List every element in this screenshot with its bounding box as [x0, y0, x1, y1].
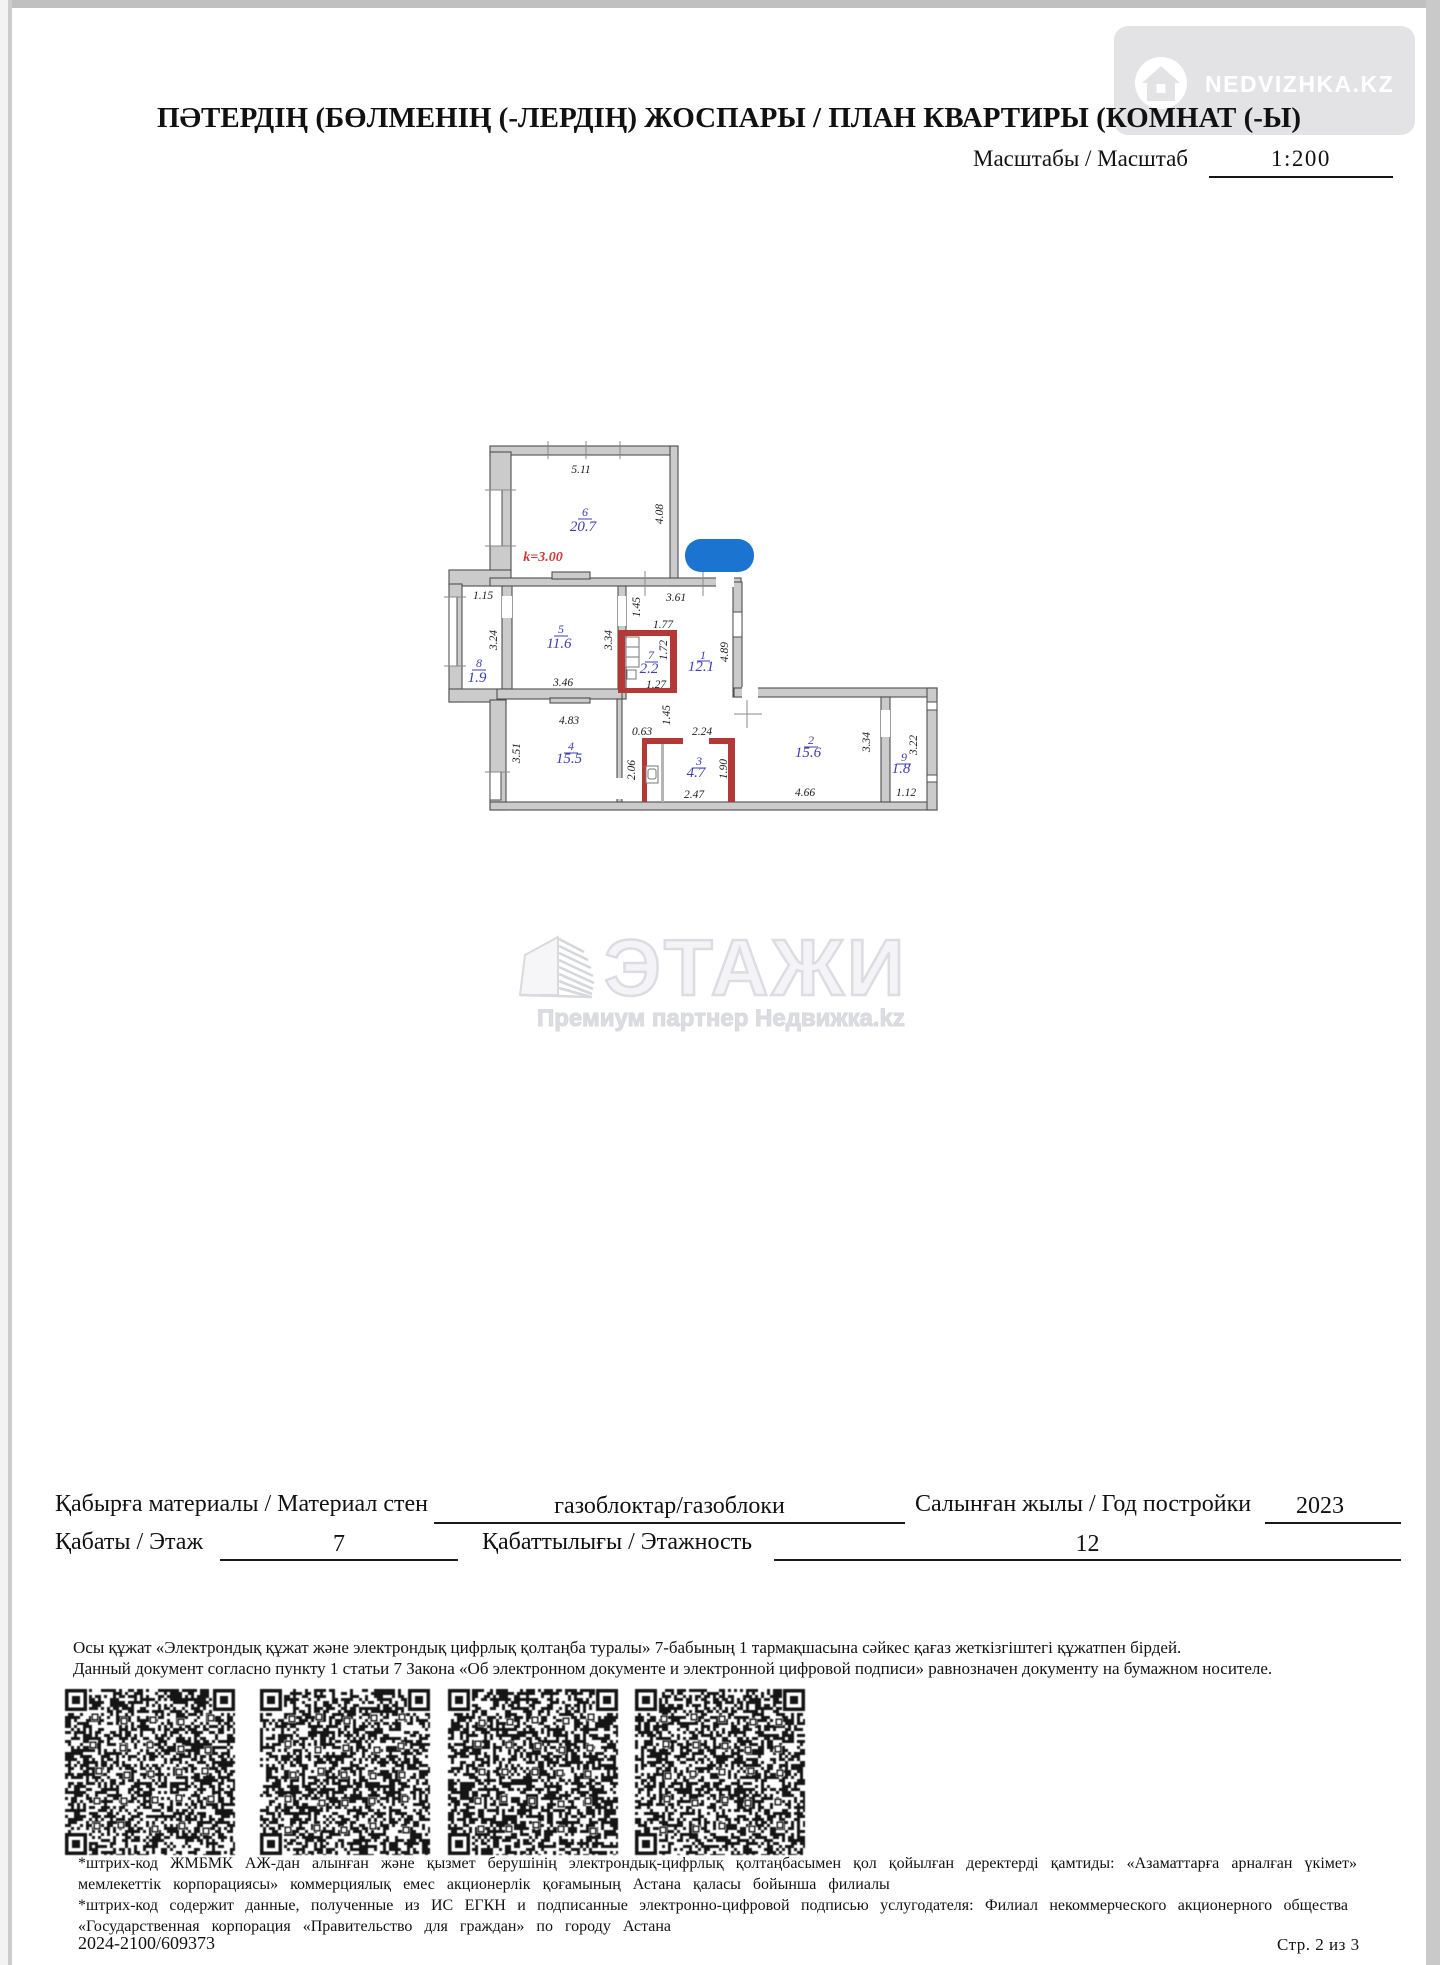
- svg-text:11.6: 11.6: [546, 636, 572, 652]
- svg-text:4.66: 4.66: [795, 787, 815, 799]
- svg-text:6: 6: [582, 505, 588, 519]
- svg-text:2.2: 2.2: [640, 661, 659, 677]
- svg-text:1.72: 1.72: [658, 640, 670, 660]
- svg-text:1.27: 1.27: [646, 679, 667, 691]
- svg-text:1.90: 1.90: [718, 759, 730, 779]
- svg-text:8: 8: [476, 656, 482, 670]
- svg-text:3.51: 3.51: [511, 743, 523, 764]
- svg-text:1.12: 1.12: [896, 787, 916, 799]
- svg-text:1.8: 1.8: [892, 761, 911, 777]
- svg-text:3.34: 3.34: [603, 630, 615, 651]
- svg-text:1.15: 1.15: [473, 590, 493, 602]
- svg-text:1.77: 1.77: [653, 619, 674, 631]
- svg-text:1.45: 1.45: [631, 597, 643, 617]
- svg-text:0.63: 0.63: [632, 726, 652, 738]
- svg-text:3.34: 3.34: [861, 732, 873, 753]
- svg-text:1.45: 1.45: [661, 705, 673, 725]
- svg-text:k=3.00: k=3.00: [523, 550, 562, 565]
- svg-text:3.61: 3.61: [665, 592, 686, 604]
- svg-text:2.47: 2.47: [684, 789, 705, 801]
- svg-text:4.7: 4.7: [687, 765, 707, 781]
- svg-text:2.06: 2.06: [626, 760, 638, 780]
- svg-text:3.24: 3.24: [488, 630, 500, 651]
- svg-text:5: 5: [558, 622, 564, 636]
- svg-text:4.83: 4.83: [559, 715, 579, 727]
- svg-text:2.24: 2.24: [692, 726, 712, 738]
- svg-text:7: 7: [648, 648, 655, 662]
- svg-text:20.7: 20.7: [570, 519, 598, 535]
- svg-text:4.89: 4.89: [719, 642, 731, 662]
- svg-text:5.11: 5.11: [571, 464, 590, 476]
- svg-text:3.22: 3.22: [908, 735, 920, 756]
- svg-text:4.08: 4.08: [654, 504, 666, 524]
- svg-text:1.9: 1.9: [468, 670, 487, 686]
- svg-text:3.46: 3.46: [552, 677, 573, 689]
